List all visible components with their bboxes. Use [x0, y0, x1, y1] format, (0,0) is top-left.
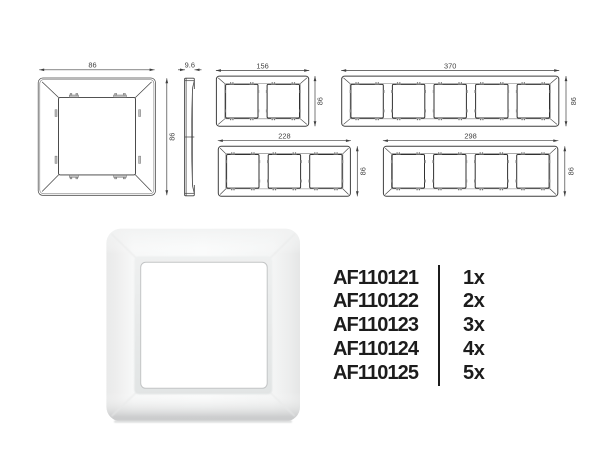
svg-text:86: 86 — [168, 133, 177, 141]
svg-text:86: 86 — [358, 167, 367, 175]
svg-text:370: 370 — [444, 61, 456, 70]
svg-text:9.6: 9.6 — [185, 61, 195, 70]
svg-text:86: 86 — [315, 97, 324, 105]
svg-text:86: 86 — [569, 97, 578, 105]
svg-text:156: 156 — [256, 61, 268, 70]
svg-text:228: 228 — [278, 132, 290, 141]
svg-text:298: 298 — [464, 132, 476, 141]
svg-text:86: 86 — [566, 167, 575, 175]
svg-text:86: 86 — [88, 61, 96, 70]
